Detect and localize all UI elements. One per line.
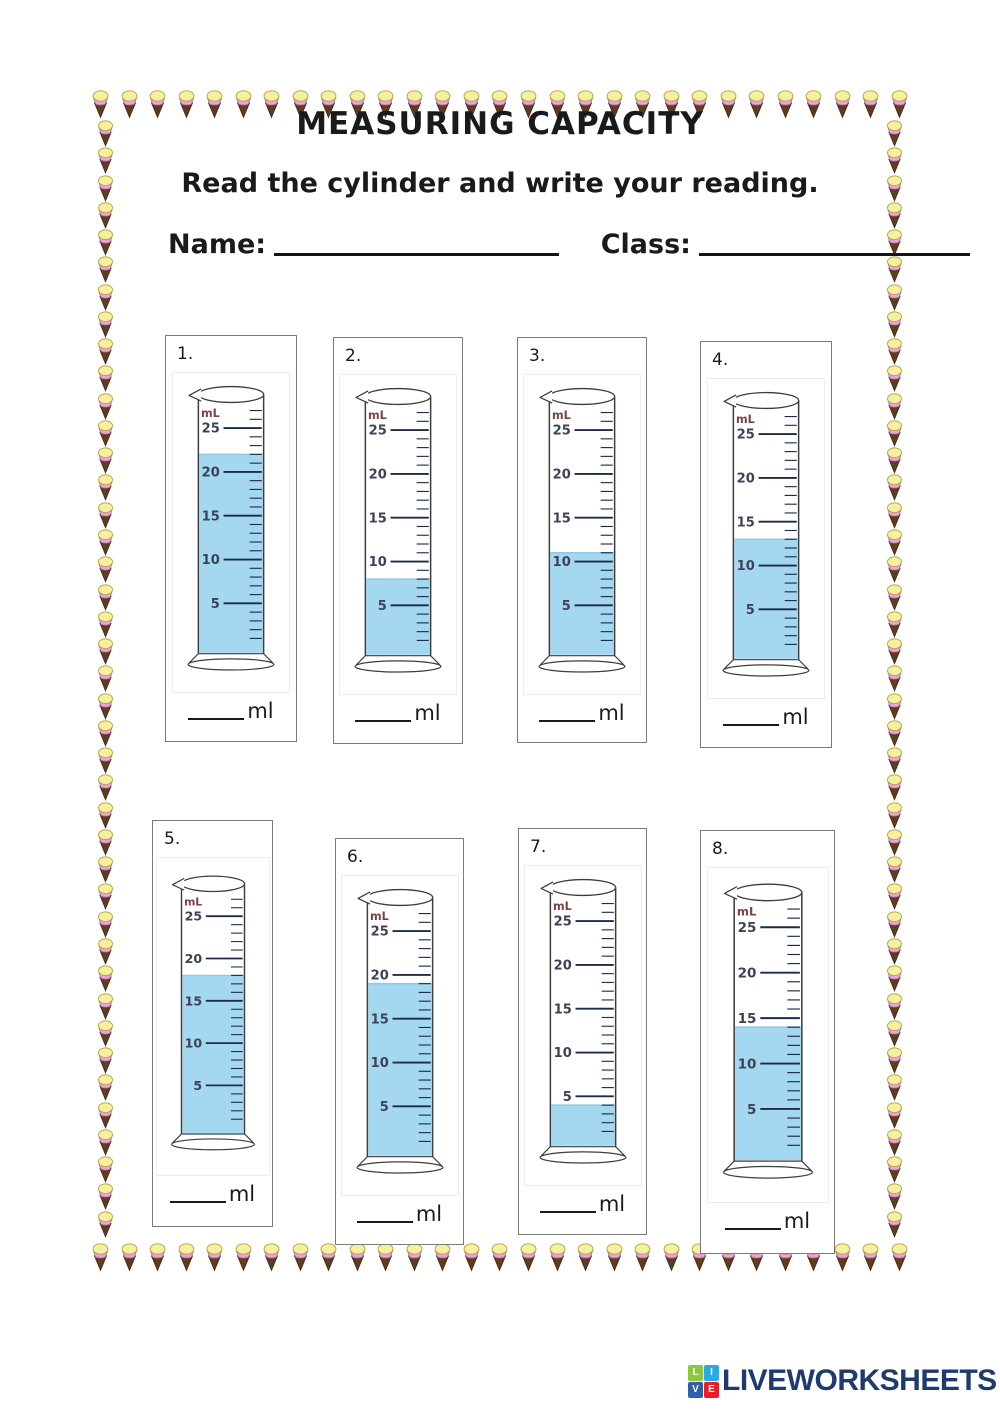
- logo-letter-v: V: [688, 1382, 703, 1398]
- ice-cream-cone-icon: [661, 1243, 682, 1272]
- ice-cream-cone-icon: [95, 856, 116, 883]
- ice-cream-cone-icon: [884, 747, 905, 774]
- ice-cream-cone-icon: [95, 720, 116, 747]
- ice-cream-cone-icon: [95, 774, 116, 801]
- worksheet-header: MEASURING CAPACITY Read the cylinder and…: [0, 106, 1000, 260]
- answer-row: ml: [355, 701, 440, 725]
- ice-cream-cone-icon: [318, 1243, 339, 1272]
- name-class-row: Name: Class:: [168, 229, 970, 260]
- ice-cream-cone-icon: [884, 447, 905, 474]
- svg-text:20: 20: [553, 468, 571, 483]
- box-number: 5.: [164, 829, 180, 849]
- ice-cream-cone-icon: [884, 829, 905, 856]
- svg-text:5: 5: [379, 1100, 388, 1115]
- cylinder-box-7: 7. 510152025mL ml: [518, 828, 647, 1235]
- ice-cream-cone-icon: [290, 1243, 311, 1272]
- ice-cream-cone-icon: [884, 1074, 905, 1101]
- unit-label: ml: [782, 705, 808, 729]
- box-number: 4.: [712, 350, 728, 370]
- ice-cream-cone-icon: [884, 856, 905, 883]
- ice-cream-cone-icon: [884, 556, 905, 583]
- ice-cream-cone-icon: [884, 883, 905, 910]
- ice-cream-cone-icon: [404, 1243, 425, 1272]
- page-title: MEASURING CAPACITY: [0, 106, 1000, 142]
- box-number: 3.: [529, 346, 545, 366]
- svg-text:5: 5: [378, 599, 387, 614]
- cylinder-illustration: 510152025mL: [524, 865, 642, 1186]
- ice-cream-cone-icon: [604, 1243, 625, 1272]
- logo-letter-e: E: [704, 1382, 719, 1398]
- ice-cream-cone-icon: [95, 256, 116, 283]
- ice-cream-cone-icon: [884, 502, 905, 529]
- ice-cream-cone-icon: [95, 311, 116, 338]
- liveworksheets-logo-icon: L I V E: [688, 1365, 719, 1398]
- svg-text:10: 10: [553, 1046, 571, 1061]
- svg-text:20: 20: [553, 959, 571, 974]
- answer-blank[interactable]: [188, 718, 244, 720]
- svg-text:15: 15: [184, 993, 202, 1008]
- unit-label: ml: [784, 1209, 810, 1233]
- svg-text:15: 15: [370, 1012, 388, 1027]
- name-label: Name:: [168, 229, 266, 260]
- svg-text:10: 10: [370, 1056, 388, 1071]
- ice-cream-cone-icon: [884, 1156, 905, 1183]
- ice-cream-cone-icon: [95, 420, 116, 447]
- worksheet-page: MEASURING CAPACITY Read the cylinder and…: [0, 0, 1000, 1414]
- ice-cream-cone-icon: [884, 720, 905, 747]
- svg-text:20: 20: [737, 472, 755, 487]
- ice-cream-cone-icon: [95, 665, 116, 692]
- ice-cream-cone-icon: [95, 393, 116, 420]
- logo-letter-i: I: [704, 1365, 719, 1381]
- cylinder-box-5: 5. 510152025mL ml: [152, 820, 273, 1227]
- ice-cream-cone-icon: [884, 584, 905, 611]
- answer-blank[interactable]: [540, 1211, 596, 1213]
- svg-text:20: 20: [184, 951, 202, 966]
- ice-cream-cone-icon: [884, 284, 905, 311]
- svg-text:25: 25: [184, 908, 202, 923]
- ice-cream-cone-icon: [884, 665, 905, 692]
- svg-text:5: 5: [746, 603, 755, 618]
- ice-cream-cone-icon: [95, 693, 116, 720]
- answer-row: ml: [725, 1209, 810, 1233]
- ice-cream-cone-icon: [147, 1243, 168, 1272]
- svg-text:5: 5: [746, 1101, 755, 1117]
- ice-cream-cone-icon: [95, 338, 116, 365]
- ice-cream-cone-icon: [233, 1243, 254, 1272]
- box-number: 8.: [712, 839, 728, 859]
- ice-cream-cone-icon: [95, 1211, 116, 1238]
- ice-cream-cone-icon: [884, 1211, 905, 1238]
- ice-cream-cone-icon: [884, 365, 905, 392]
- ice-cream-cone-icon: [884, 993, 905, 1020]
- svg-text:25: 25: [553, 424, 571, 439]
- answer-row: ml: [188, 699, 273, 723]
- ice-cream-cone-icon: [119, 1243, 140, 1272]
- answer-blank[interactable]: [357, 1221, 413, 1223]
- svg-text:15: 15: [202, 509, 220, 524]
- ice-cream-cone-icon: [95, 993, 116, 1020]
- ice-cream-cone-icon: [884, 529, 905, 556]
- ice-cream-cone-icon: [461, 1243, 482, 1272]
- ice-cream-cone-icon: [884, 1129, 905, 1156]
- instruction-text: Read the cylinder and write your reading…: [0, 168, 1000, 199]
- box-number: 6.: [347, 847, 363, 867]
- ice-cream-cone-icon: [95, 747, 116, 774]
- ice-cream-cone-icon: [95, 1102, 116, 1129]
- svg-text:5: 5: [211, 597, 220, 612]
- ice-cream-cone-icon: [884, 802, 905, 829]
- cylinder-illustration: 510152025mL: [523, 374, 641, 695]
- ice-cream-cone-icon: [95, 965, 116, 992]
- answer-row: ml: [723, 705, 808, 729]
- cone-border-right: [884, 120, 905, 1238]
- ice-cream-cone-icon: [884, 1183, 905, 1210]
- ice-cream-cone-icon: [95, 1047, 116, 1074]
- ice-cream-cone-icon: [95, 447, 116, 474]
- unit-label: ml: [414, 701, 440, 725]
- ice-cream-cone-icon: [95, 883, 116, 910]
- cylinder-illustration: 510152025mL: [172, 372, 290, 693]
- cylinder-box-8: 8. 510152025mL ml: [700, 830, 835, 1254]
- ice-cream-cone-icon: [95, 584, 116, 611]
- svg-text:mL: mL: [201, 407, 220, 420]
- svg-text:20: 20: [369, 468, 387, 483]
- svg-text:25: 25: [370, 925, 388, 940]
- ice-cream-cone-icon: [884, 938, 905, 965]
- ice-cream-cone-icon: [90, 1243, 111, 1272]
- svg-text:mL: mL: [736, 413, 755, 426]
- answer-blank[interactable]: [539, 720, 595, 722]
- ice-cream-cone-icon: [95, 829, 116, 856]
- svg-text:25: 25: [202, 422, 220, 437]
- answer-row: ml: [357, 1202, 442, 1226]
- ice-cream-cone-icon: [95, 1020, 116, 1047]
- box-number: 1.: [177, 344, 193, 364]
- ice-cream-cone-icon: [95, 802, 116, 829]
- ice-cream-cone-icon: [95, 1074, 116, 1101]
- svg-text:25: 25: [553, 915, 571, 930]
- unit-label: ml: [599, 1192, 625, 1216]
- unit-label: ml: [416, 1202, 442, 1226]
- unit-label: ml: [247, 699, 273, 723]
- svg-text:mL: mL: [553, 900, 572, 913]
- logo-letter-l: L: [688, 1365, 703, 1381]
- ice-cream-cone-icon: [884, 638, 905, 665]
- unit-label: ml: [598, 701, 624, 725]
- svg-text:5: 5: [562, 599, 571, 614]
- cylinder-illustration: 510152025mL: [156, 857, 270, 1176]
- cylinder-illustration: 510152025mL: [341, 875, 459, 1196]
- answer-blank[interactable]: [170, 1201, 226, 1203]
- ice-cream-cone-icon: [95, 911, 116, 938]
- ice-cream-cone-icon: [95, 556, 116, 583]
- cylinder-box-2: 2. 510152025mL ml: [333, 337, 463, 744]
- svg-text:10: 10: [553, 555, 571, 570]
- svg-text:10: 10: [737, 559, 755, 574]
- svg-text:20: 20: [202, 466, 220, 481]
- svg-text:25: 25: [737, 920, 756, 936]
- ice-cream-cone-icon: [95, 1129, 116, 1156]
- svg-text:10: 10: [369, 555, 387, 570]
- ice-cream-cone-icon: [261, 1243, 282, 1272]
- svg-text:10: 10: [184, 1035, 202, 1050]
- svg-text:mL: mL: [736, 904, 756, 918]
- svg-text:20: 20: [370, 969, 388, 984]
- ice-cream-cone-icon: [95, 284, 116, 311]
- brand-text: LIVEWORKSHEETS: [722, 1364, 997, 1398]
- answer-blank[interactable]: [725, 1228, 781, 1230]
- cylinder-illustration: 510152025mL: [707, 867, 829, 1203]
- svg-text:10: 10: [202, 553, 220, 568]
- unit-label: ml: [229, 1182, 255, 1206]
- ice-cream-cone-icon: [575, 1243, 596, 1272]
- svg-text:15: 15: [737, 1010, 756, 1026]
- class-blank[interactable]: [699, 253, 970, 256]
- answer-blank[interactable]: [355, 720, 411, 722]
- ice-cream-cone-icon: [95, 1156, 116, 1183]
- ice-cream-cone-icon: [884, 474, 905, 501]
- ice-cream-cone-icon: [489, 1243, 510, 1272]
- svg-text:10: 10: [737, 1056, 756, 1072]
- svg-text:15: 15: [737, 515, 755, 530]
- ice-cream-cone-icon: [884, 693, 905, 720]
- cylinder-illustration: 510152025mL: [707, 378, 825, 699]
- svg-text:15: 15: [553, 511, 571, 526]
- ice-cream-cone-icon: [432, 1243, 453, 1272]
- ice-cream-cone-icon: [375, 1243, 396, 1272]
- cone-border-left: [95, 120, 116, 1238]
- ice-cream-cone-icon: [884, 420, 905, 447]
- ice-cream-cone-icon: [884, 1020, 905, 1047]
- svg-text:mL: mL: [184, 895, 202, 908]
- ice-cream-cone-icon: [547, 1243, 568, 1272]
- ice-cream-cone-icon: [884, 338, 905, 365]
- answer-row: ml: [170, 1182, 255, 1206]
- liveworksheets-logo: L I V E LIVEWORKSHEETS: [688, 1364, 997, 1398]
- ice-cream-cone-icon: [884, 311, 905, 338]
- svg-text:15: 15: [369, 511, 387, 526]
- ice-cream-cone-icon: [95, 502, 116, 529]
- ice-cream-cone-icon: [518, 1243, 539, 1272]
- ice-cream-cone-icon: [884, 611, 905, 638]
- ice-cream-cone-icon: [95, 365, 116, 392]
- answer-blank[interactable]: [723, 724, 779, 726]
- ice-cream-cone-icon: [95, 1183, 116, 1210]
- svg-text:5: 5: [562, 1090, 571, 1105]
- ice-cream-cone-icon: [95, 611, 116, 638]
- svg-text:mL: mL: [368, 409, 387, 422]
- cylinder-illustration: 510152025mL: [339, 374, 457, 695]
- ice-cream-cone-icon: [95, 529, 116, 556]
- ice-cream-cone-icon: [884, 1047, 905, 1074]
- box-number: 2.: [345, 346, 361, 366]
- cylinder-box-1: 1. 510152025mL ml: [165, 335, 297, 742]
- ice-cream-cone-icon: [884, 393, 905, 420]
- ice-cream-cone-icon: [860, 1243, 881, 1272]
- answer-row: ml: [540, 1192, 625, 1216]
- ice-cream-cone-icon: [95, 938, 116, 965]
- svg-text:mL: mL: [552, 409, 571, 422]
- ice-cream-cone-icon: [884, 256, 905, 283]
- ice-cream-cone-icon: [176, 1243, 197, 1272]
- ice-cream-cone-icon: [889, 1243, 910, 1272]
- ice-cream-cone-icon: [95, 474, 116, 501]
- ice-cream-cone-icon: [884, 1102, 905, 1129]
- ice-cream-cone-icon: [884, 965, 905, 992]
- cylinder-box-3: 3. 510152025mL ml: [517, 337, 647, 743]
- ice-cream-cone-icon: [347, 1243, 368, 1272]
- answer-row: ml: [539, 701, 624, 725]
- box-number: 7.: [530, 837, 546, 857]
- ice-cream-cone-icon: [95, 638, 116, 665]
- cylinder-box-4: 4. 510152025mL ml: [700, 341, 832, 748]
- name-blank[interactable]: [274, 253, 559, 256]
- svg-text:25: 25: [737, 428, 755, 443]
- svg-text:20: 20: [737, 965, 756, 981]
- ice-cream-cone-icon: [884, 774, 905, 801]
- svg-text:5: 5: [193, 1077, 202, 1092]
- ice-cream-cone-icon: [884, 911, 905, 938]
- class-label: Class:: [601, 229, 691, 260]
- svg-text:mL: mL: [370, 910, 389, 923]
- ice-cream-cone-icon: [204, 1243, 225, 1272]
- ice-cream-cone-icon: [632, 1243, 653, 1272]
- svg-text:15: 15: [553, 1002, 571, 1017]
- svg-text:25: 25: [369, 424, 387, 439]
- cylinder-box-6: 6. 510152025mL ml: [335, 838, 464, 1245]
